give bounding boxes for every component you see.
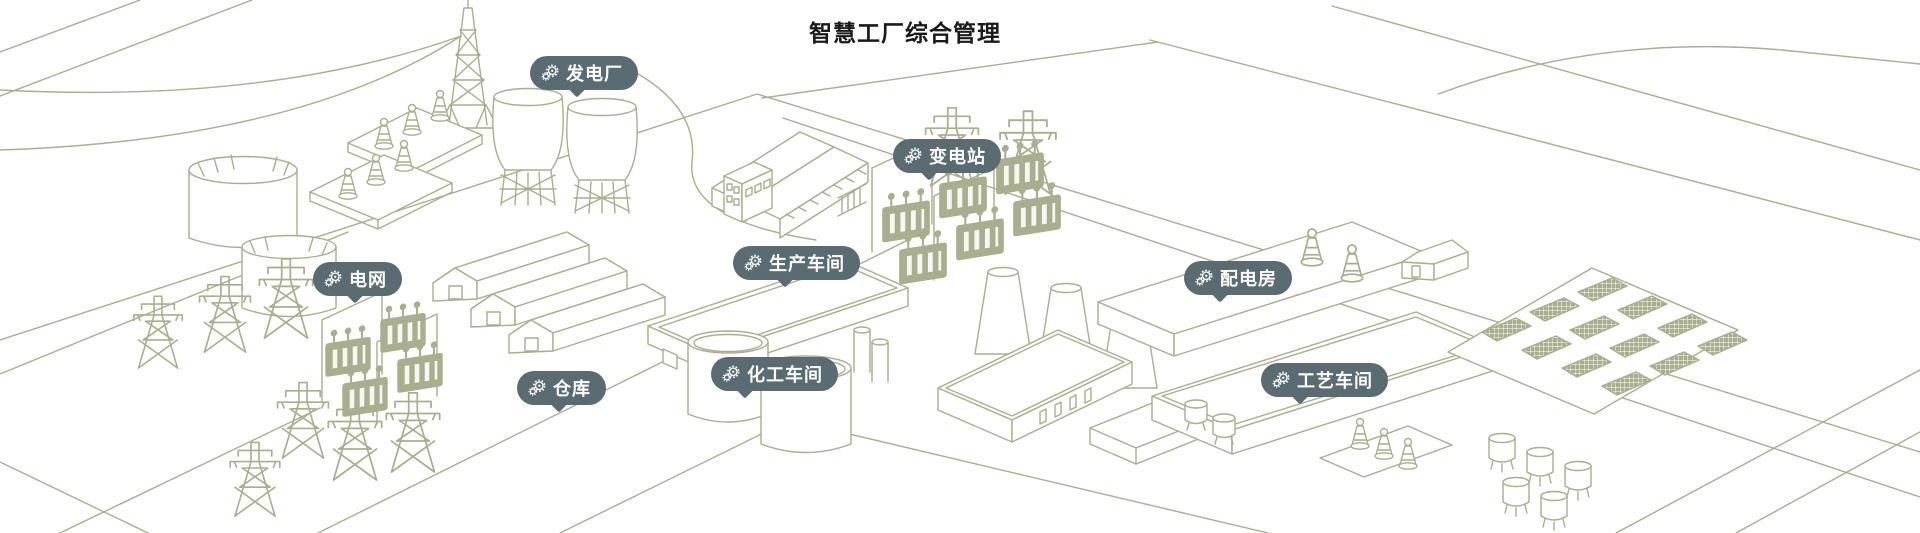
marker-chemical-workshop[interactable]: 化工车间 (711, 357, 838, 391)
marker-label: 生产车间 (769, 250, 845, 276)
solar-farm (1448, 268, 1747, 414)
warehouse-sheds (433, 232, 665, 353)
gears-icon (1195, 269, 1213, 287)
insulator-platforms (310, 91, 482, 230)
power-grid-transformers (322, 292, 442, 424)
gears-icon (324, 270, 342, 288)
cooling-towers (493, 89, 637, 214)
gears-icon (541, 64, 559, 82)
marker-label: 仓库 (553, 375, 591, 401)
factory-illustration (0, 0, 1920, 533)
page-title: 智慧工厂综合管理 (809, 14, 1001, 48)
marker-process-workshop[interactable]: 工艺车间 (1261, 363, 1388, 397)
marker-distribution-room[interactable]: 配电房 (1184, 261, 1292, 295)
marker-label: 发电厂 (566, 60, 623, 86)
production-factory (712, 132, 868, 238)
marker-warehouse[interactable]: 仓库 (517, 371, 606, 405)
lattice-mast (438, 0, 498, 128)
marker-label: 配电房 (1220, 265, 1277, 291)
gears-icon (528, 379, 546, 397)
marker-production-workshop[interactable]: 生产车间 (733, 246, 860, 280)
marker-power-grid[interactable]: 电网 (313, 262, 402, 296)
gears-icon (722, 365, 740, 383)
smart-factory-overview: 智慧工厂综合管理 发电厂 变电站 电网 生产车间 配电房 仓库 化工车间 (0, 0, 1920, 533)
gears-icon (904, 147, 922, 165)
marker-label: 电网 (349, 266, 387, 292)
marker-label: 工艺车间 (1297, 367, 1373, 393)
marker-label: 化工车间 (747, 361, 823, 387)
gears-icon (744, 254, 762, 272)
marker-substation[interactable]: 变电站 (893, 139, 1001, 173)
marker-label: 变电站 (929, 143, 986, 169)
storage-tanks (189, 155, 336, 317)
gears-icon (1272, 371, 1290, 389)
marker-power-plant[interactable]: 发电厂 (530, 56, 638, 90)
